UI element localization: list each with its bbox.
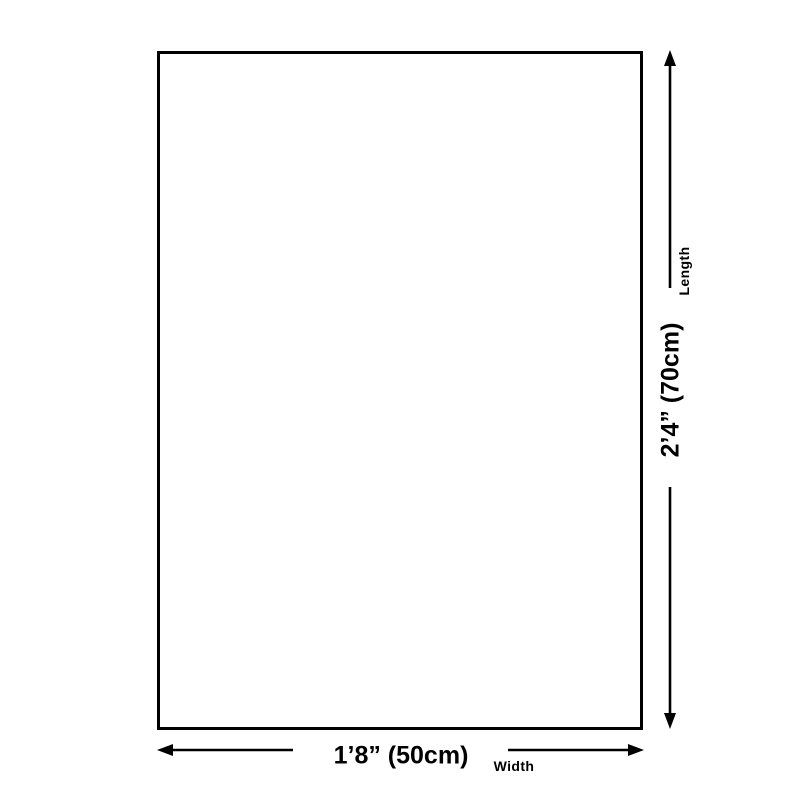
length-label: Length	[677, 246, 691, 295]
arrow-left-icon	[157, 744, 173, 756]
width-label: Width	[494, 759, 535, 773]
arrow-down-icon	[664, 713, 676, 729]
product-outline	[157, 51, 643, 730]
arrow-right-icon	[628, 744, 644, 756]
width-value: 1’8” (50cm)	[334, 744, 469, 769]
length-value: 2’4” (70cm)	[659, 323, 684, 458]
dimension-diagram: 2’4” (70cm) Length 1’8” (50cm) Width	[0, 0, 800, 800]
arrow-up-icon	[664, 50, 676, 66]
